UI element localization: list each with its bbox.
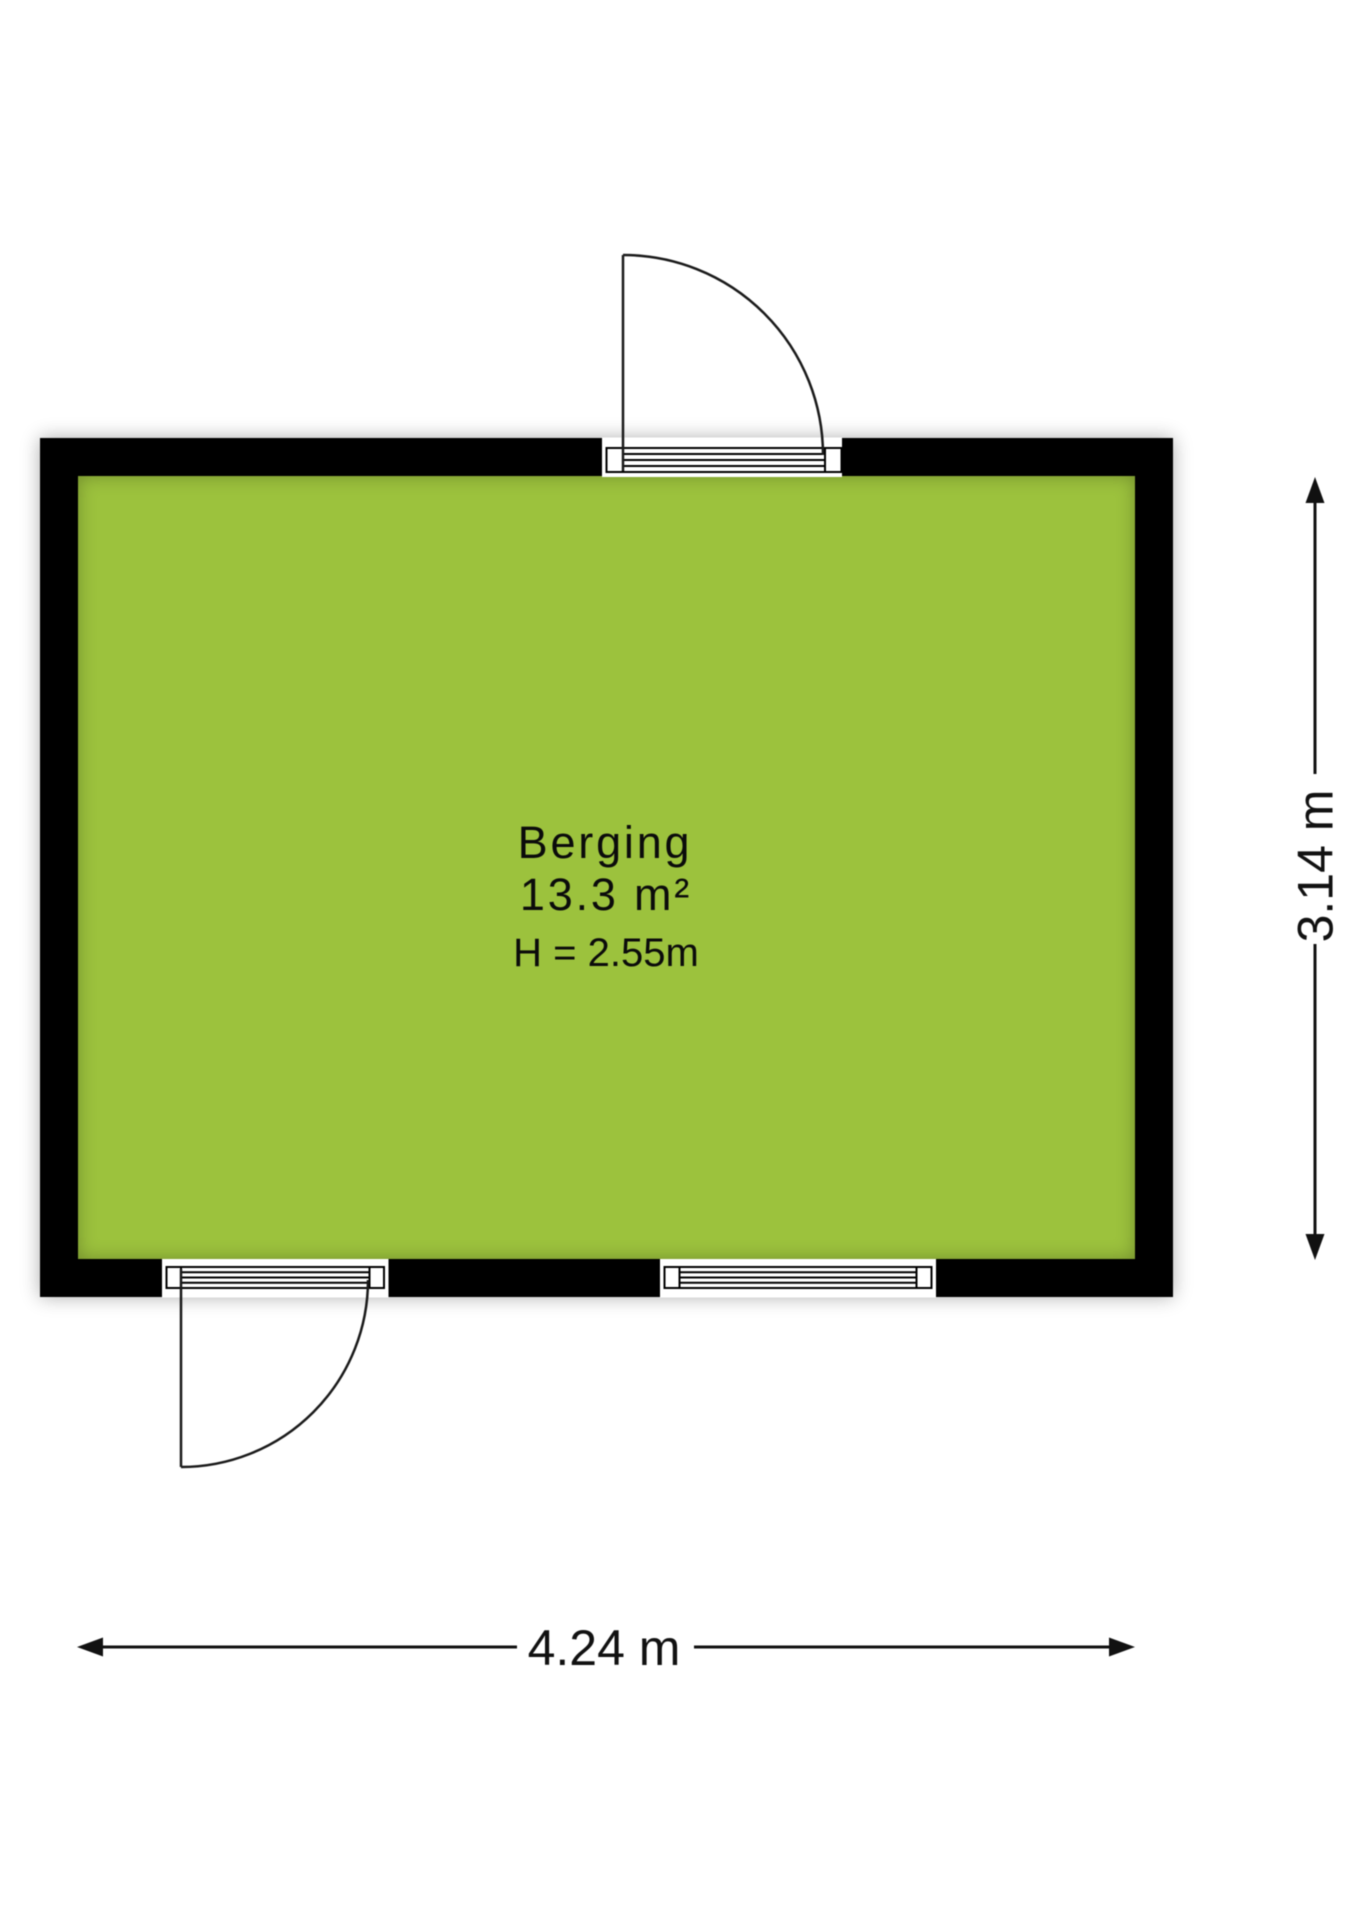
svg-text:13.3 m²: 13.3 m² [520, 869, 692, 920]
svg-text:H = 2.55m: H = 2.55m [513, 931, 699, 975]
svg-text:Berging: Berging [518, 817, 693, 868]
svg-text:3.14 m: 3.14 m [1288, 790, 1344, 943]
svg-text:4.24 m: 4.24 m [528, 1620, 681, 1676]
